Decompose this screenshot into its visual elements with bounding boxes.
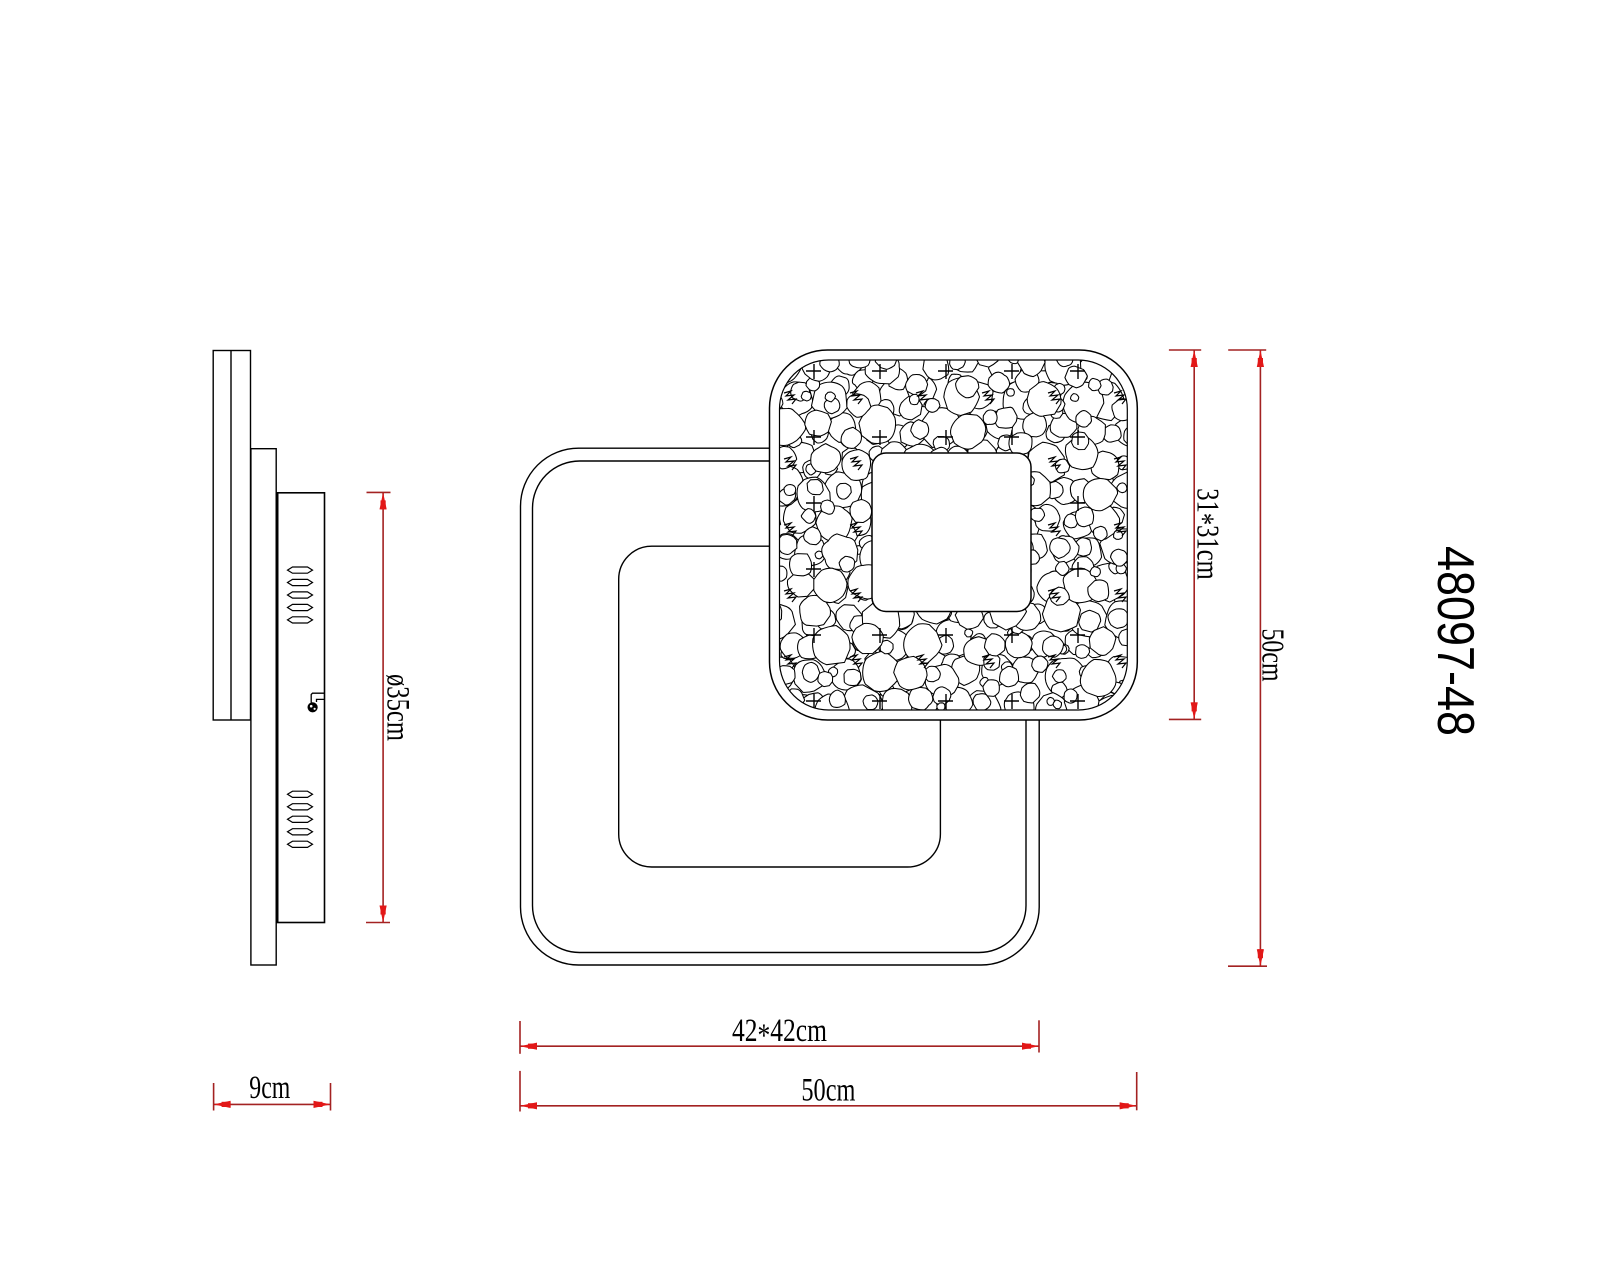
svg-text:42*42cm: 42*42cm [732, 1013, 827, 1054]
svg-text:31*31cm: 31*31cm [1186, 488, 1227, 580]
svg-text:50cm: 50cm [1255, 629, 1291, 682]
svg-text:ø35cm: ø35cm [380, 674, 416, 741]
svg-text:9cm: 9cm [249, 1070, 290, 1106]
svg-text:50cm: 50cm [801, 1073, 855, 1109]
svg-text:48097-48: 48097-48 [1426, 546, 1484, 736]
